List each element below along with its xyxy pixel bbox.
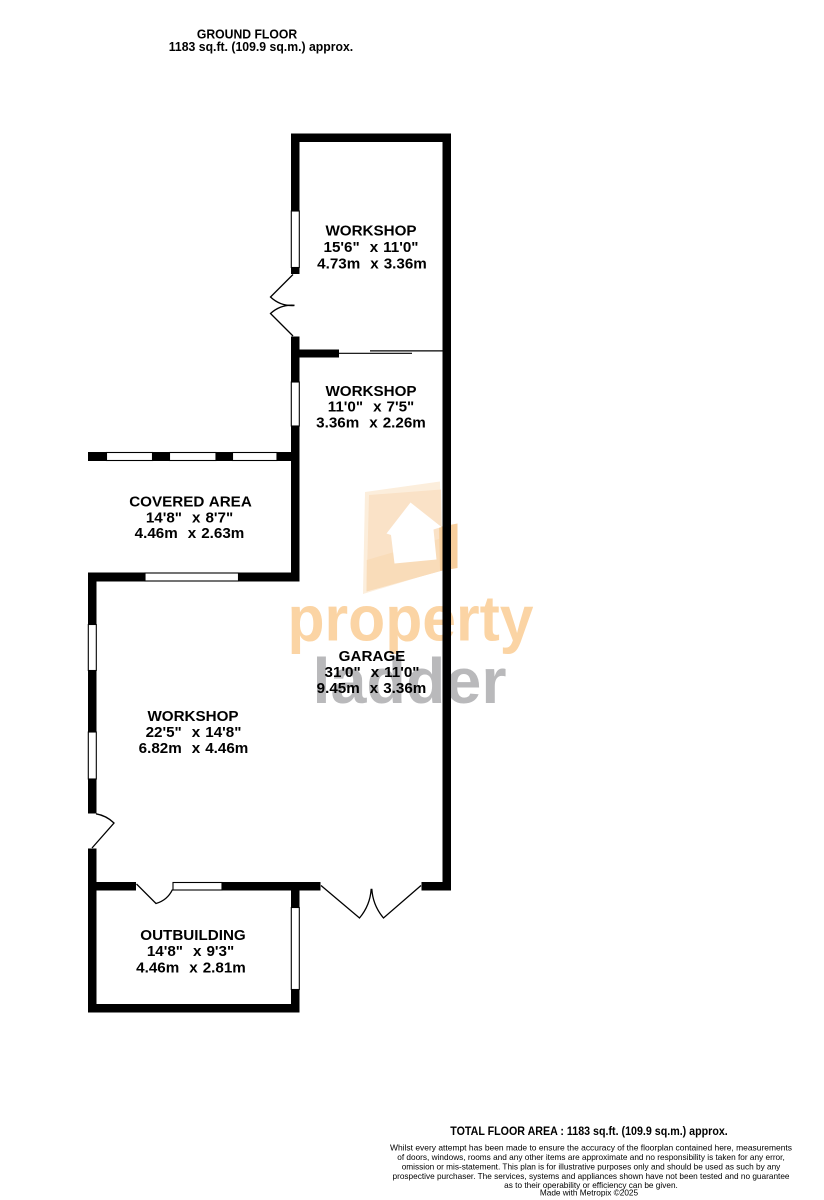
svg-text:15'6" x 11'0": 15'6" x 11'0" xyxy=(324,239,419,256)
svg-text:of doors, windows, rooms and a: of doors, windows, rooms and any other i… xyxy=(397,1153,784,1162)
svg-text:OUTBUILDING: OUTBUILDING xyxy=(140,927,245,944)
svg-text:prospective purchaser. The ser: prospective purchaser. The services, sys… xyxy=(392,1172,789,1181)
svg-text:11'0" x 7'5": 11'0" x 7'5" xyxy=(328,399,415,416)
svg-text:1183 sq.ft. (109.9 sq.m.) appr: 1183 sq.ft. (109.9 sq.m.) approx. xyxy=(169,40,353,54)
svg-text:WORKSHOP: WORKSHOP xyxy=(325,383,416,400)
svg-text:GARAGE: GARAGE xyxy=(339,648,406,665)
svg-text:22'5" x 14'8": 22'5" x 14'8" xyxy=(146,724,242,741)
svg-text:4.46m x 2.63m: 4.46m x 2.63m xyxy=(135,525,245,542)
svg-text:3.36m x 2.26m: 3.36m x 2.26m xyxy=(316,415,426,432)
svg-text:6.82m x 4.46m: 6.82m x 4.46m xyxy=(139,740,249,757)
svg-text:WORKSHOP: WORKSHOP xyxy=(325,223,416,240)
svg-text:Made with Metropix ©2025: Made with Metropix ©2025 xyxy=(540,1189,639,1198)
svg-text:TOTAL FLOOR AREA : 1183 sq.ft.: TOTAL FLOOR AREA : 1183 sq.ft. (109.9 sq… xyxy=(450,1124,728,1138)
svg-text:omission or mis-statement. Thi: omission or mis-statement. This plan is … xyxy=(402,1162,781,1171)
svg-text:4.73m x 3.36m: 4.73m x 3.36m xyxy=(317,256,427,273)
svg-text:COVERED AREA: COVERED AREA xyxy=(129,494,252,511)
svg-text:Whilst every attempt has been: Whilst every attempt has been made to en… xyxy=(390,1144,792,1153)
svg-text:WORKSHOP: WORKSHOP xyxy=(147,708,238,725)
svg-text:4.46m x 2.81m: 4.46m x 2.81m xyxy=(136,960,246,977)
svg-text:14'8" x 9'3": 14'8" x 9'3" xyxy=(147,943,234,960)
svg-text:31'0" x 11'0": 31'0" x 11'0" xyxy=(325,664,420,681)
svg-text:property: property xyxy=(288,583,534,655)
svg-text:14'8" x 8'7": 14'8" x 8'7" xyxy=(146,509,233,526)
svg-text:9.45m x 3.36m: 9.45m x 3.36m xyxy=(317,680,427,697)
